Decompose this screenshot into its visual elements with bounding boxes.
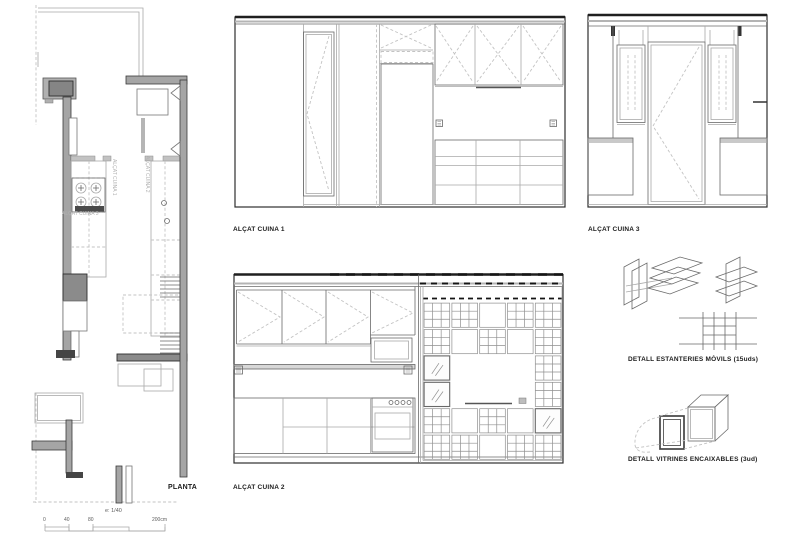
elevation-cuina1-label: ALÇAT CUINA 1 [233,226,285,233]
grid-shelf-module [452,303,478,327]
blank-panel-module [508,330,534,354]
glass-vitrine-module [424,356,450,380]
grid-shelf-module [424,303,450,327]
scale-tick-80: 80 [88,517,94,523]
blank-panel-module [508,409,534,433]
blank-panel-module [452,409,478,433]
plan-label: PLANTA [168,484,197,491]
wall-mid [117,354,187,361]
wall-stubs [71,156,180,161]
scale-note: e: 1/40 [105,508,122,514]
grid-shelf-module [424,409,450,433]
tall-door [304,24,340,207]
scale-tick-0: 0 [43,517,46,523]
plan-annotation-cuina3: ALÇAT CUINA 3 [62,211,99,217]
terrace-outline [38,8,143,77]
plan-fridge [137,89,168,115]
window-symbol [171,142,180,156]
upper-cabinets [237,287,416,347]
shelving-wall [419,275,563,464]
grid-shelf-module [535,435,561,459]
elevation-cuina3-label: ALÇAT CUINA 3 [588,226,640,233]
glass-vitrine-module [424,382,450,406]
architectural-drawing-sheet: ALÇAT CUINA 1 ALÇAT CUINA 3 ALÇAT CUINA … [0,0,800,542]
detail-estanteries [624,257,757,350]
detail-vitrines [635,395,728,452]
elevation-cuina1 [235,17,565,207]
window-symbol [171,86,180,100]
upper-cabinets [435,24,563,88]
blank-panel-module [480,303,506,327]
elevation-cuina2-label: ALÇAT CUINA 2 [233,484,285,491]
center-door [648,26,705,205]
lower-block-left [588,138,633,195]
grid-shelf-module [508,435,534,459]
plan-annotation-cuina2: ALÇAT CUINA 2 [144,156,150,193]
plan-oven [63,274,87,301]
tall-cabinet-front [381,64,433,205]
scale-tick-40: 40 [64,517,70,523]
upper-cabinet-over-column [380,25,434,64]
axon-cube [688,395,728,441]
wall-top [126,76,187,84]
plan-cabinet [63,301,87,331]
plan-table [118,364,173,391]
side-cabinet-left [617,30,645,125]
elevation-cuina3 [588,15,767,207]
grid-shelf-module [480,330,506,354]
grid-shelf-module [424,435,450,459]
blank-panel-module [452,330,478,354]
glass-vitrine-module [535,409,561,433]
plan-counter-right [151,161,180,336]
blank-panel-module [480,435,506,459]
countertop [234,365,415,370]
outlet [436,120,557,127]
grid-shelf-module [535,303,561,327]
plan-bottom-walls [32,393,132,503]
grid-shelf-module [452,435,478,459]
detail-estanteries-label: DETALL ESTANTERIES MÒVILS (15uds) [628,356,758,363]
oven [372,398,413,452]
shelf-front-diagram [679,312,757,350]
wall-foot [56,350,75,358]
scale-tick-200: 200cm [152,517,167,523]
detail-vitrines-label: DETALL VITRINES ENCAIXABLES (3ud) [628,456,758,463]
grid-shelf-module [535,330,561,354]
door-swing-dashed [653,47,699,199]
scale-bar [45,524,165,531]
wall-right [180,80,187,477]
base-drawers [435,140,563,205]
grid-shelf-module [535,356,561,380]
side-cabinet-right [708,30,736,125]
axon-shelf-exploded [624,257,702,309]
elevation-cuina2 [234,275,563,464]
grid-shelf-module [508,303,534,327]
lower-block-right [720,138,767,195]
grid-shelf-module [480,409,506,433]
plan-cooktop [72,178,105,212]
plan-island-dashed [123,295,181,333]
grid-shelf-module [424,330,450,354]
plan-annotation-cuina1: ALÇAT CUINA 1 [111,159,117,196]
microwave [371,338,412,362]
shelf-module-grid [424,303,561,459]
door-swing-dashed [307,36,329,191]
floor-plan [32,5,187,531]
grid-shelf-module [535,382,561,406]
axon-shelf-assembled [716,257,757,303]
